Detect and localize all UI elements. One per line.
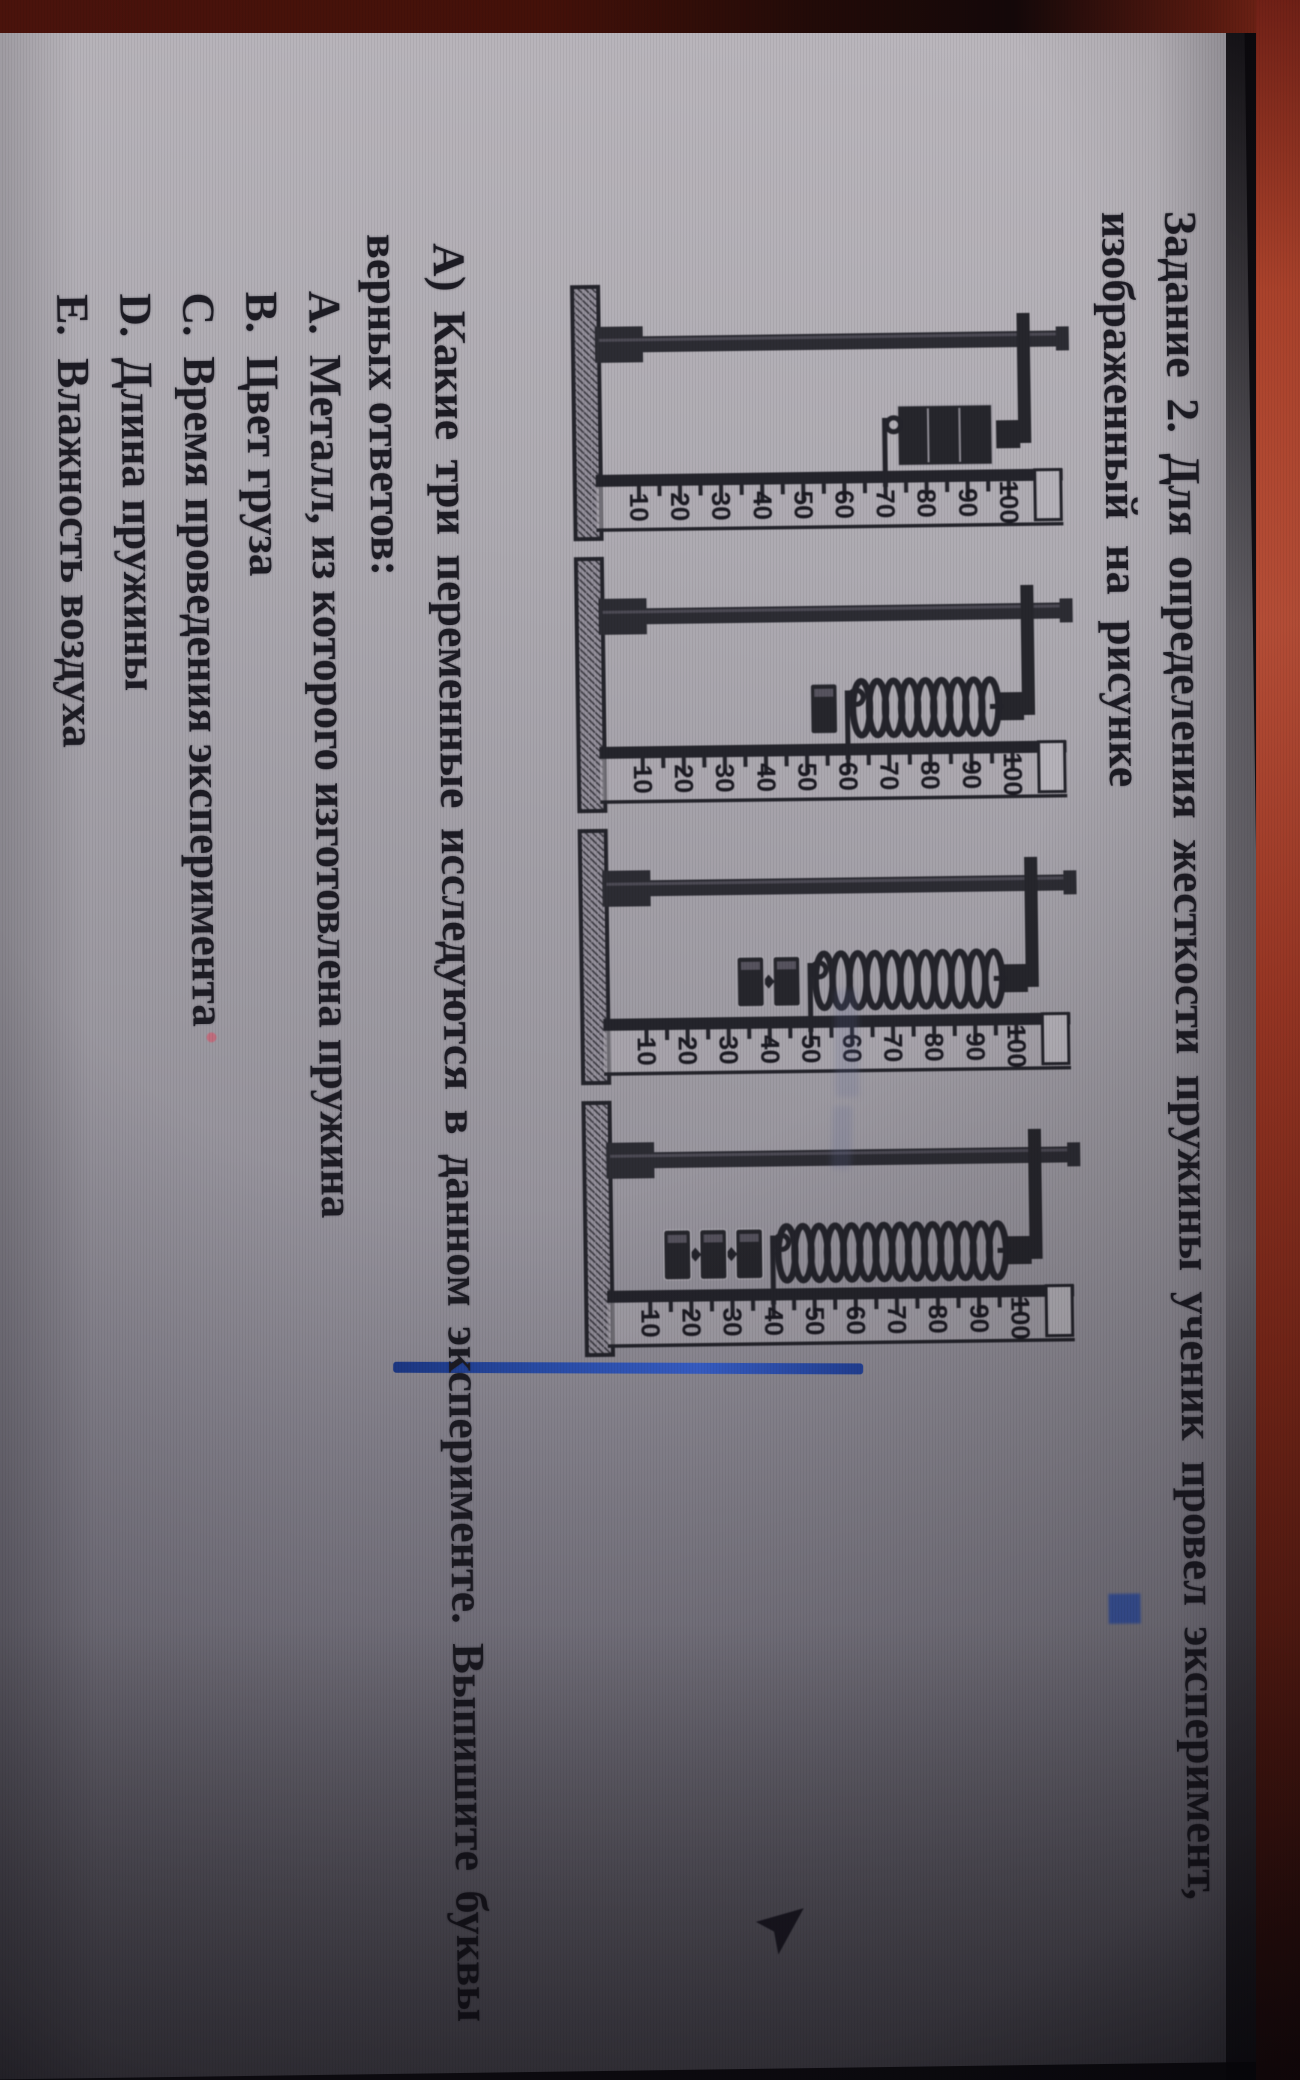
weight-box-highlight <box>777 961 796 969</box>
ruler-tick <box>904 483 908 493</box>
pole-top-cap <box>1067 1142 1080 1166</box>
ruler-number: 70 <box>874 761 904 790</box>
option-e-marker: Е. <box>46 294 99 359</box>
option-d-marker: D. <box>109 293 162 358</box>
spring-compact <box>897 404 992 465</box>
screen-photo: Задание 2. Для определения жесткости пру… <box>0 0 1300 2080</box>
ruler-tick <box>702 757 706 767</box>
ruler-tick <box>747 1029 751 1039</box>
ruler-number: 100 <box>994 480 1025 524</box>
ruler-number: 70 <box>882 1305 912 1334</box>
ruler-number: 80 <box>912 489 942 518</box>
red-pixel-artifact <box>206 1032 216 1042</box>
ruler-tick <box>822 484 826 494</box>
ruler-tick <box>781 484 785 494</box>
ruler-tick <box>863 483 867 493</box>
ruler-number: 40 <box>751 763 781 792</box>
experiment-figure: 1020304050607080901001020304050607080901… <box>529 0 1123 2072</box>
ruler-number: 90 <box>964 1304 994 1333</box>
ruler-tick <box>751 1301 755 1311</box>
pointer <box>845 690 851 759</box>
pointer <box>807 963 813 1032</box>
ruler-tick <box>829 1028 833 1038</box>
ruler-number: 40 <box>755 1035 785 1064</box>
ruler-number: 80 <box>923 1305 953 1334</box>
ruler-number: 50 <box>800 1306 830 1335</box>
option-e-text: Влажность воздуха <box>47 358 104 748</box>
ruler-number: 50 <box>788 490 818 519</box>
pole-top-cap <box>1059 598 1072 622</box>
ruler-number: 10 <box>632 1037 662 1066</box>
weight-box-highlight <box>814 689 833 697</box>
ruler-tick <box>953 1026 957 1036</box>
bezel-right-red-band <box>1256 0 1300 2080</box>
watermark-smudge <box>834 989 860 1097</box>
weight-box-highlight <box>740 1234 759 1242</box>
ruler-number: 10 <box>635 1309 665 1338</box>
answer-options-list: А. Металл, из которого изготовлена пружи… <box>35 290 363 1222</box>
bezel-top-red-band <box>0 0 1300 33</box>
ruler-tick <box>998 1297 1002 1307</box>
ruler-number: 60 <box>833 762 863 791</box>
ruler-number: 90 <box>960 1032 990 1061</box>
option-b-marker: В. <box>235 291 288 356</box>
option-b: В. Цвет груза <box>224 291 300 1219</box>
ruler-number: 30 <box>710 764 740 793</box>
ruler-tick <box>669 1302 673 1312</box>
ruler-number: 90 <box>953 488 983 517</box>
ruler-number: 70 <box>871 489 901 518</box>
question-line-2: верных ответов: <box>356 234 414 577</box>
ruler-number: 40 <box>747 491 777 520</box>
ruler-tick <box>986 481 990 491</box>
ruler-tick <box>949 754 953 764</box>
ruler-number: 50 <box>796 1034 826 1063</box>
stand-3: 102030405060708090100 <box>564 816 1098 1091</box>
pole-top-cap <box>1056 326 1069 350</box>
ruler-tick <box>784 756 788 766</box>
option-d: D. Длина пружины <box>98 293 174 1221</box>
ruler-tick <box>990 753 994 763</box>
ruler-number: 20 <box>676 1308 706 1337</box>
pointer <box>770 1236 776 1305</box>
ruler-tick <box>867 755 871 765</box>
ruler-tick <box>908 755 912 765</box>
ruler-number: 60 <box>829 490 859 519</box>
weight-box-highlight <box>668 1235 687 1243</box>
ruler-end-cap <box>1046 1285 1073 1335</box>
option-c-text: Время проведения эксперимента <box>173 356 234 1027</box>
option-c: С. Время проведения эксперимента <box>161 292 237 1220</box>
pointer <box>882 418 888 487</box>
stand-2: 102030405060708090100 <box>560 544 1094 819</box>
ruler-tick <box>657 486 661 496</box>
page-edge-shadow <box>1226 0 1260 2080</box>
option-d-text: Длина пружины <box>110 357 167 691</box>
option-e: Е. Влажность воздуха <box>35 294 111 1222</box>
ruler-tick <box>994 1025 998 1035</box>
task-title-line-1: Задание 2. Для определения жесткости пру… <box>1154 210 1231 1900</box>
hook <box>887 418 901 432</box>
ruler-number: 70 <box>878 1033 908 1062</box>
ruler-tick <box>874 1299 878 1309</box>
stand-1: 102030405060708090100 <box>556 272 1090 547</box>
blue-mark-artifact <box>1108 1593 1140 1623</box>
option-a: А. Металл, из которого изготовлена пружи… <box>287 290 363 1218</box>
ruler-tick <box>706 1029 710 1039</box>
ruler-number: 100 <box>1001 1024 1032 1068</box>
ruler-tick <box>740 485 744 495</box>
option-a-text: Металл, из которого изготовлена пружина <box>299 354 363 1218</box>
pole-top-cap <box>1063 870 1076 894</box>
ruler-tick <box>665 1030 669 1040</box>
weight-box-highlight <box>741 962 760 970</box>
ruler-tick <box>699 485 703 495</box>
ruler-number: 100 <box>998 752 1029 796</box>
ruler-tick <box>743 757 747 767</box>
ruler-number: 80 <box>919 1033 949 1062</box>
ruler-tick <box>833 1300 837 1310</box>
document-page: Задание 2. Для определения жесткости пру… <box>0 0 1273 2080</box>
ruler-end-cap <box>1038 741 1065 791</box>
ruler-tick <box>870 1027 874 1037</box>
ruler-number: 30 <box>706 492 736 521</box>
option-a-marker: А. <box>298 290 351 355</box>
ruler-number: 40 <box>759 1307 789 1336</box>
ruler-tick <box>661 758 665 768</box>
ruler-tick <box>792 1300 796 1310</box>
ruler-tick <box>945 482 949 492</box>
ruler-number: 20 <box>669 764 699 793</box>
arrow-cursor-icon <box>753 1904 808 1959</box>
ruler-tick <box>826 756 830 766</box>
ruler-number: 30 <box>718 1307 748 1336</box>
option-b-text: Цвет груза <box>236 355 291 576</box>
ruler-tick <box>956 1298 960 1308</box>
ruler-end-cap <box>1042 1013 1069 1063</box>
watermark-smudge <box>831 1105 853 1170</box>
ruler-number: 20 <box>665 492 695 521</box>
ruler-number: 100 <box>1005 1296 1036 1340</box>
weight-box-highlight <box>704 1234 723 1242</box>
ruler-tick <box>710 1301 714 1311</box>
ruler-number: 10 <box>624 493 654 522</box>
ruler-number: 10 <box>628 765 658 794</box>
clamp-jaw <box>996 420 1020 448</box>
ruler-number: 20 <box>673 1036 703 1065</box>
ruler-tick <box>788 1028 792 1038</box>
ruler-number: 50 <box>792 762 822 791</box>
ruler-end-cap <box>1035 469 1062 519</box>
ruler-number: 60 <box>841 1306 871 1335</box>
ruler-number: 90 <box>957 760 987 789</box>
option-c-marker: С. <box>172 292 225 357</box>
ruler-tick <box>915 1299 919 1309</box>
ruler-tick <box>912 1027 916 1037</box>
ruler-number: 80 <box>915 761 945 790</box>
ruler-number: 30 <box>714 1035 744 1064</box>
question-line-1: А) Какие три переменные исследуются в да… <box>422 243 500 2023</box>
